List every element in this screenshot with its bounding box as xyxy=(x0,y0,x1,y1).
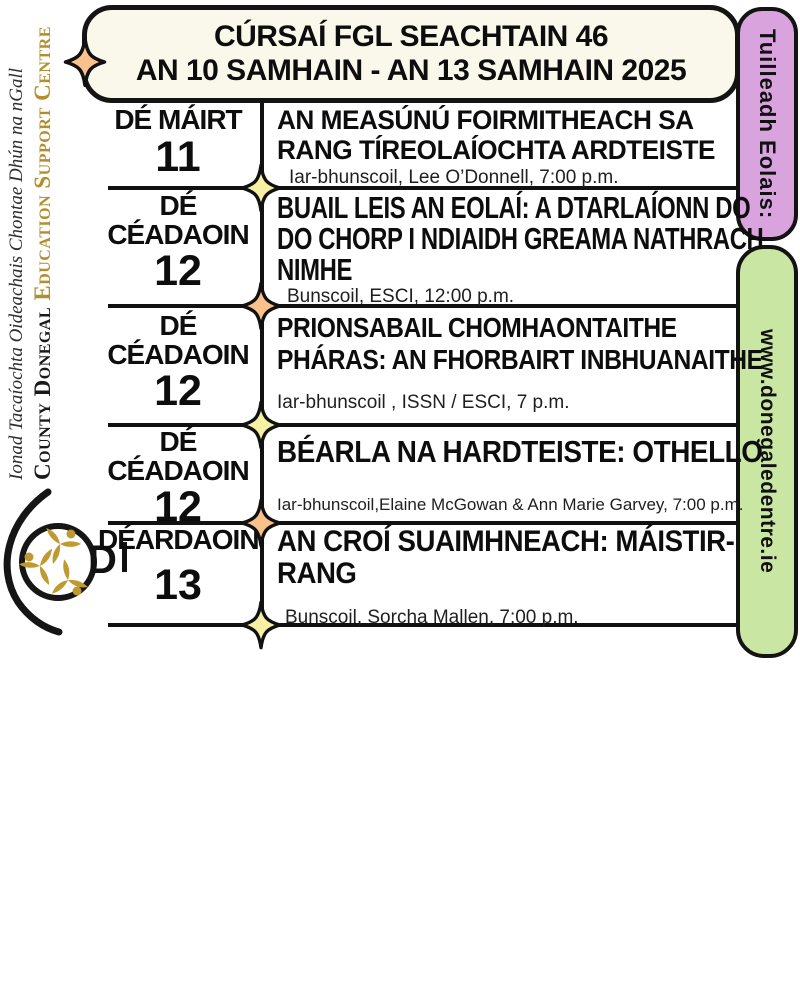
course-title: PRIONSABAIL CHOMHAONTAITHE PHÁRAS: AN FH… xyxy=(277,312,763,376)
day-cell: DÉARDAOIN 13 xyxy=(98,526,258,608)
centre-name-english-gold: Education Support Centre xyxy=(30,26,55,301)
centre-name-english: County Donegal Education Support Centre xyxy=(30,26,56,480)
sparkle-icon xyxy=(240,159,282,217)
day-cell: DÉ CÉADAOIN 12 xyxy=(98,312,258,414)
course-details: Iar-bhunscoil, Lee O’Donnell, 7:00 p.m. xyxy=(277,167,747,189)
centre-name-space xyxy=(30,301,55,307)
sparkle-icon xyxy=(240,596,282,654)
course-details: Iar-bhunscoil,Elaine McGowan & Ann Marie… xyxy=(277,495,747,515)
row-divider-3 xyxy=(108,423,742,427)
centre-name-english-black: County Donegal xyxy=(30,307,55,480)
course-details: Bunscoil, Sorcha Mallen, 7:00 p.m. xyxy=(277,607,747,629)
sparkle-icon xyxy=(240,277,282,335)
course-cell: PRIONSABAIL CHOMHAONTAITHE PHÁRAS: AN FH… xyxy=(277,312,747,414)
header-title-line2: AN 10 SAMHAIN - AN 13 SAMHAIN 2025 xyxy=(136,54,686,88)
course-title: BÉARLA NA HARDTEISTE: OTHELLO xyxy=(277,436,763,469)
course-details: Iar-bhunscoil , ISSN / ESCI, 7 p.m. xyxy=(277,392,747,414)
day-number: 12 xyxy=(98,249,258,294)
day-name: DÉ CÉADAOIN xyxy=(98,428,258,485)
header-banner: CÚRSAÍ FGL SEACHTAIN 46 AN 10 SAMHAIN - … xyxy=(82,5,740,103)
sparkle-icon xyxy=(62,36,108,88)
sparkle-icon xyxy=(240,494,282,552)
course-cell: AN MEASÚNÚ FOIRMITHEACH SA RANG TÍREOLAÍ… xyxy=(277,106,747,189)
day-number: 13 xyxy=(98,563,258,608)
day-cell: DÉ CÉADAOIN 12 xyxy=(98,192,258,294)
course-cell: BUAIL LEIS AN EOLAÍ: A DTARLAÍONN DO DO … xyxy=(277,192,747,308)
day-name: DÉARDAOIN xyxy=(98,526,258,555)
day-number: 11 xyxy=(98,135,258,180)
day-name: DÉ MÁIRT xyxy=(98,106,258,135)
course-title: AN CROÍ SUAIMHNEACH: MÁISTIR- RANG xyxy=(277,526,734,591)
sparkle-icon xyxy=(240,396,282,454)
poster-canvas: Ionad Tacaíochta Oideachais Chontae Dhún… xyxy=(0,0,800,1000)
course-cell: AN CROÍ SUAIMHNEACH: MÁISTIR- RANG Bunsc… xyxy=(277,526,747,629)
day-cell: DÉ CÉADAOIN 12 xyxy=(98,428,258,530)
course-cell: BÉARLA NA HARDTEISTE: OTHELLO Iar-bhunsc… xyxy=(277,428,747,515)
day-name: DÉ CÉADAOIN xyxy=(98,192,258,249)
centre-name-irish: Ionad Tacaíochta Oideachais Chontae Dhún… xyxy=(6,68,28,480)
course-title: AN MEASÚNÚ FOIRMITHEACH SA RANG TÍREOLAÍ… xyxy=(277,106,715,165)
course-title: BUAIL LEIS AN EOLAÍ: A DTARLAÍONN DO DO … xyxy=(277,192,763,285)
day-number: 12 xyxy=(98,369,258,414)
day-name: DÉ CÉADAOIN xyxy=(98,312,258,369)
course-details: Bunscoil, ESCI, 12:00 p.m. xyxy=(277,286,747,308)
header-title-line1: CÚRSAÍ FGL SEACHTAIN 46 xyxy=(214,20,608,54)
day-cell: DÉ MÁIRT 11 xyxy=(98,106,258,180)
more-info-label: Tuilleadh Eolais: xyxy=(754,29,780,219)
